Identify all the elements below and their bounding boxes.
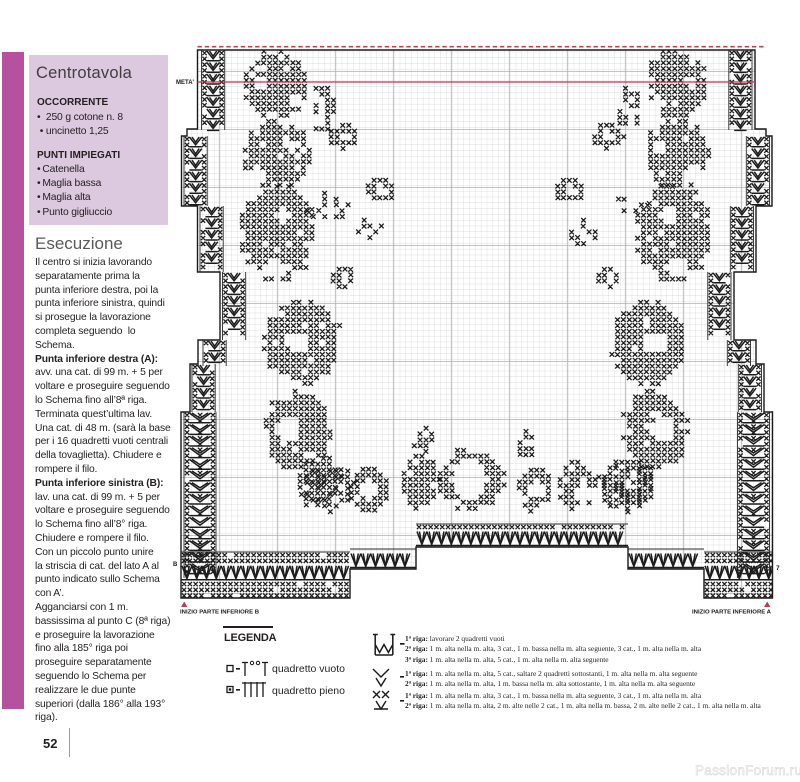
- svg-text:META': META': [176, 80, 195, 86]
- svg-text:7: 7: [776, 565, 780, 572]
- svg-text:INIZIO PARTE INFERIORE B: INIZIO PARTE INFERIORE B: [180, 610, 259, 616]
- svg-text:INIZIO PARTE INFERIORE A: INIZIO PARTE INFERIORE A: [692, 610, 771, 616]
- svg-text:B: B: [173, 562, 178, 568]
